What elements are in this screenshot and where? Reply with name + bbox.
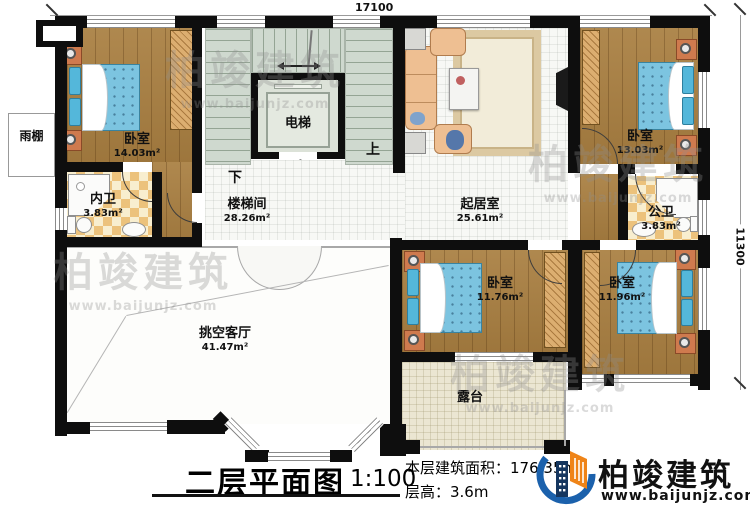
- door-threshold: [455, 352, 533, 362]
- closet-bedroom-top-right: [582, 30, 600, 125]
- window: [90, 422, 167, 434]
- toilet-private: [76, 217, 92, 233]
- sink-private: [122, 222, 146, 237]
- dimension-tick: [734, 3, 747, 16]
- stairs-up-label: 上: [366, 139, 380, 159]
- room-label-bedroom-top-right: 卧室 13.03m²: [595, 130, 685, 156]
- wall: [698, 128, 710, 200]
- wall: [55, 422, 90, 434]
- bed-blanket: [82, 64, 108, 131]
- bed-pillow: [681, 299, 693, 326]
- shower-drain-icon: [76, 182, 85, 191]
- room-label-elevator: 电梯: [268, 117, 328, 132]
- table-flowers: [456, 76, 465, 85]
- wall: [152, 172, 162, 237]
- coffee-table: [449, 68, 479, 110]
- wall: [533, 352, 570, 362]
- wall: [380, 16, 437, 28]
- rain-canopy: [8, 113, 55, 177]
- person-figure: [446, 130, 464, 150]
- wall: [55, 162, 123, 172]
- bed-blanket: [420, 263, 446, 333]
- window: [698, 72, 710, 128]
- door-threshold: [582, 374, 604, 386]
- room-label-bedroom-top-left: 卧室 14.03m²: [92, 133, 182, 159]
- stairs-arrow-left-icon: [277, 62, 284, 70]
- nightstand: [675, 333, 696, 354]
- lamp-icon: [679, 253, 690, 264]
- wall: [390, 352, 455, 362]
- wall: [568, 240, 582, 390]
- wall: [676, 164, 698, 174]
- window: [333, 15, 380, 28]
- dimension-right-value: 11300: [734, 224, 747, 268]
- hall-rail-right: [322, 246, 391, 248]
- bed-pillow: [69, 67, 81, 95]
- wall: [390, 240, 528, 250]
- dimension-top-value: 17100: [352, 1, 396, 14]
- cushion-accent: [410, 112, 425, 125]
- stairs-arrow-right-icon: [314, 62, 321, 70]
- lamp-icon: [680, 43, 691, 54]
- wall: [55, 230, 67, 436]
- room-label-void: 挑空客厅 41.47m²: [180, 327, 270, 353]
- floor-terrace: [402, 362, 566, 450]
- wall: [390, 238, 402, 362]
- room-label-bedroom-bottom-left: 卧室 11.76m²: [455, 277, 545, 303]
- tv-icon: [556, 67, 568, 111]
- dimension-line-top: [50, 15, 712, 16]
- room-label-stairwell: 楼梯间 28.26m²: [202, 198, 292, 224]
- wall: [55, 237, 202, 247]
- wall: [698, 16, 710, 72]
- wall: [394, 440, 420, 454]
- window: [437, 15, 530, 28]
- wall: [604, 374, 614, 386]
- room-label-living-room: 起居室 25.61m²: [435, 198, 525, 224]
- wall: [636, 240, 710, 250]
- side-table: [404, 28, 426, 50]
- elevator-door-panel: [274, 84, 322, 89]
- title-underline: [152, 494, 400, 497]
- window: [87, 15, 175, 28]
- terrace-edge: [564, 390, 566, 446]
- lamp-icon: [408, 255, 419, 266]
- stairs-left-run: [205, 28, 251, 165]
- wall: [265, 16, 333, 28]
- closet-bedroom-top-left: [170, 30, 194, 130]
- closet-bedroom-bottom-right: [584, 252, 600, 368]
- window: [614, 374, 690, 386]
- bed-pillow: [407, 298, 419, 325]
- wall: [628, 164, 635, 174]
- bed-pillow: [682, 97, 694, 125]
- stairs-arrow-line: [283, 65, 315, 67]
- room-label-private-bath: 内卫 3.83m²: [58, 193, 148, 219]
- elevator-door-opening: [279, 152, 317, 159]
- lamp-icon: [408, 334, 419, 345]
- nightstand: [404, 330, 425, 351]
- wall: [393, 16, 405, 173]
- room-label-public-bath: 公卫 3.83m²: [616, 206, 706, 232]
- floor-plan-page: 17100 11300 卧室 14.03m² 卧室 13.03m² 卧室 11.…: [0, 0, 750, 516]
- nightstand: [675, 249, 696, 270]
- lamp-icon: [679, 337, 690, 348]
- room-label-bedroom-bottom-right: 卧室 11.96m²: [577, 277, 667, 303]
- wall: [568, 16, 580, 173]
- window: [217, 15, 265, 28]
- bed-pillow: [682, 66, 694, 94]
- floor-height-text: 层高：3.6m: [405, 481, 488, 502]
- bed-pillow: [681, 270, 693, 297]
- bed-pillow: [69, 98, 81, 126]
- wall: [690, 374, 710, 386]
- wall-notch-void: [43, 26, 76, 41]
- brand-url: www.baijunjz.com: [601, 488, 750, 504]
- wall: [192, 16, 202, 193]
- brand-logo-icon: [534, 444, 598, 508]
- window: [580, 15, 650, 28]
- wall: [390, 362, 402, 426]
- nightstand: [676, 39, 697, 60]
- terrace-edge: [420, 446, 544, 448]
- bed-pillow: [407, 269, 419, 296]
- side-table: [404, 132, 426, 154]
- room-label-rain-canopy: 雨棚: [8, 130, 55, 143]
- stairs-down-label: 下: [228, 167, 242, 187]
- room-label-terrace: 露台: [440, 391, 500, 406]
- floor-corridor-top-right: [580, 174, 618, 240]
- window: [698, 268, 710, 330]
- dimension-line-right: [740, 15, 741, 390]
- armchair: [430, 28, 466, 56]
